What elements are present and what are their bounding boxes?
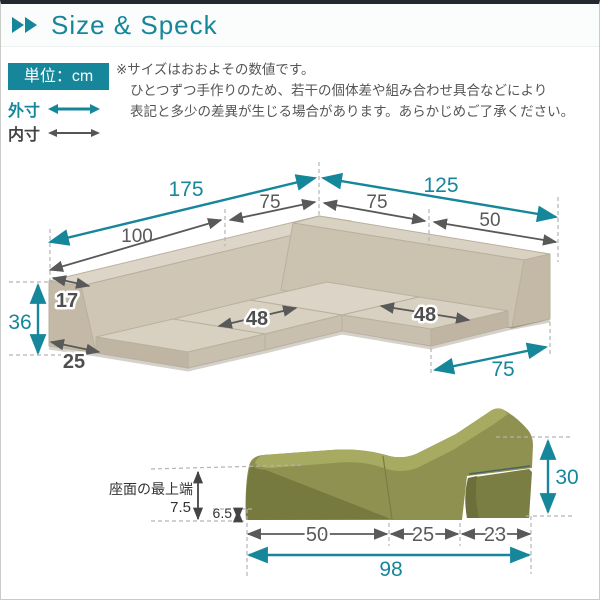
dim-back-section: 23 xyxy=(484,524,506,546)
dim-right-wing-depth: 75 xyxy=(491,358,514,381)
dim-inner-left-corner: 75 xyxy=(259,192,280,213)
dim-left-seat-width: 48 xyxy=(246,308,268,330)
dim-chair-back-height: 30 xyxy=(555,466,578,489)
chair-seat-top-label: 座面の最上端 xyxy=(109,481,193,497)
dimension-diagram: 175 125 100 75 75 50 36 17 25 48 48 xyxy=(1,4,600,600)
dim-outer-left: 175 xyxy=(168,178,203,201)
dim-seat-section: 50 xyxy=(306,524,328,546)
dim-right-seat-width: 48 xyxy=(414,304,436,326)
dim-inner-right-corner: 75 xyxy=(366,192,387,213)
dim-outer-right: 125 xyxy=(423,174,458,197)
dim-front-edge-height: 6.5 xyxy=(213,505,233,521)
dim-back-top-depth: 17 xyxy=(56,290,78,312)
dim-inner-right-back: 50 xyxy=(479,210,500,231)
dim-total-length: 98 xyxy=(379,558,402,581)
dim-back-base-depth: 25 xyxy=(63,351,85,373)
spec-sheet: Size & Speck 単位：cm 外寸 内寸 ※サイズはおおよその数値です。… xyxy=(0,0,600,600)
dim-middle-section: 25 xyxy=(412,524,434,546)
dim-back-height: 36 xyxy=(8,311,31,334)
dim-inner-left-back: 100 xyxy=(121,226,153,247)
lounge-chair-illustration xyxy=(246,408,533,520)
dim-seat-top-height: 7.5 xyxy=(170,499,191,516)
